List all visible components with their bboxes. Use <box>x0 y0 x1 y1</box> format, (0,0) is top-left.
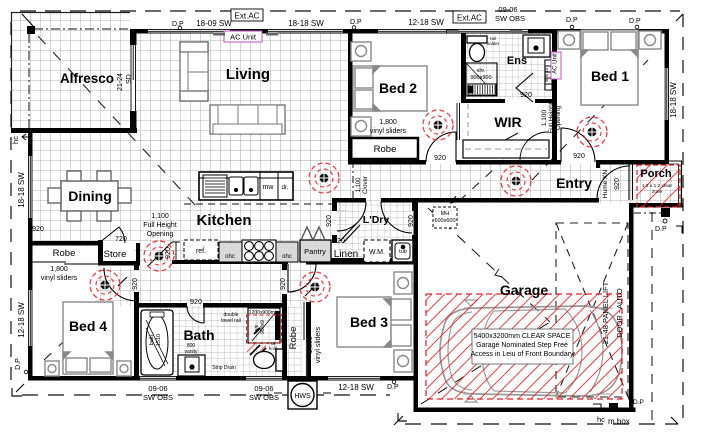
svg-text:09-06: 09-06 <box>498 5 517 14</box>
svg-text:D.P: D.P <box>15 358 22 370</box>
svg-text:1.2 x 1.2 clear: 1.2 x 1.2 clear <box>642 183 673 189</box>
svg-text:Garage Nominated Step Free: Garage Nominated Step Free <box>476 342 568 349</box>
svg-text:Entry: Entry <box>556 175 592 191</box>
svg-text:hc: hc <box>597 415 605 424</box>
svg-text:Dining: Dining <box>68 188 112 204</box>
svg-text:1,100: 1,100 <box>541 109 548 126</box>
svg-text:Ext.AC: Ext.AC <box>235 12 260 21</box>
svg-text:SD: SD <box>126 74 133 84</box>
svg-text:1,800: 1,800 <box>50 266 68 273</box>
svg-text:ohc: ohc <box>225 254 235 260</box>
svg-text:620: 620 <box>333 238 345 245</box>
svg-text:vinyl sliders: vinyl sliders <box>370 128 407 135</box>
svg-text:D.P: D.P <box>566 17 578 24</box>
svg-text:Robe: Robe <box>288 327 299 350</box>
svg-text:Porch: Porch <box>640 168 671 180</box>
svg-text:Garage: Garage <box>500 282 548 298</box>
svg-text:920: 920 <box>190 299 202 306</box>
svg-text:Kitchen: Kitchen <box>196 212 251 229</box>
svg-text:12-18 SW: 12-18 SW <box>408 18 444 27</box>
svg-text:1510: 1510 <box>156 334 162 346</box>
svg-text:18-18 SW: 18-18 SW <box>288 19 324 28</box>
svg-text:1,100: 1,100 <box>356 177 362 193</box>
svg-text:towel rail: towel rail <box>221 318 241 324</box>
svg-text:18-18 SW: 18-18 SW <box>669 82 678 118</box>
svg-text:920: 920 <box>614 178 621 190</box>
svg-text:Pantry: Pantry <box>304 247 326 256</box>
svg-text:18-09 SW: 18-09 SW <box>196 19 232 28</box>
svg-text:900x900: 900x900 <box>470 75 491 81</box>
svg-text:zone: zone <box>652 190 663 195</box>
svg-text:Full Height: Full Height <box>143 222 177 229</box>
svg-text:600x600: 600x600 <box>434 218 455 224</box>
svg-text:DOOR - AUTO: DOOR - AUTO <box>615 288 624 338</box>
svg-text:MH: MH <box>441 211 450 217</box>
svg-text:D.P: D.P <box>629 18 641 25</box>
svg-text:AC Unit: AC Unit <box>230 33 257 42</box>
svg-text:ref.: ref. <box>196 248 206 255</box>
svg-text:Strip Drain: Strip Drain <box>212 365 236 371</box>
svg-text:Opening: Opening <box>555 105 562 130</box>
svg-text:m.box: m.box <box>608 417 630 426</box>
svg-text:SW OBS: SW OBS <box>495 14 525 23</box>
svg-text:D.P: D.P <box>655 226 667 233</box>
svg-text:dr.: dr. <box>282 185 289 191</box>
svg-text:920: 920 <box>132 278 139 290</box>
svg-text:920: 920 <box>520 92 532 99</box>
svg-text:hold: hold <box>269 346 278 351</box>
svg-text:920: 920 <box>434 155 446 162</box>
svg-text:1,100: 1,100 <box>151 213 169 220</box>
svg-text:shr.: shr. <box>477 68 486 74</box>
svg-text:AC Unit: AC Unit <box>553 53 559 74</box>
svg-text:Bed 4: Bed 4 <box>69 318 107 334</box>
svg-text:Linen: Linen <box>334 249 358 260</box>
svg-text:L'Dry: L'Dry <box>363 214 390 226</box>
svg-text:mw: mw <box>263 184 275 191</box>
svg-text:Hume XN: Hume XN <box>602 170 609 198</box>
svg-text:hc: hc <box>11 136 20 144</box>
svg-text:Opening: Opening <box>147 231 174 238</box>
svg-text:W.M.: W.M. <box>369 249 385 256</box>
svg-text:720: 720 <box>115 236 127 243</box>
svg-text:D.P: D.P <box>633 399 644 406</box>
svg-text:12-18 SW: 12-18 SW <box>17 302 26 338</box>
svg-text:Access in Leiu of Front Bounda: Access in Leiu of Front Boundary <box>470 351 574 358</box>
svg-text:09-06: 09-06 <box>254 384 273 393</box>
svg-text:HWS: HWS <box>294 393 311 400</box>
svg-text:21-48 PANEL LIFT: 21-48 PANEL LIFT <box>601 281 610 344</box>
svg-text:SW OBS: SW OBS <box>249 393 279 402</box>
svg-text:920: 920 <box>280 278 287 290</box>
svg-text:Full Height: Full Height <box>548 102 555 133</box>
svg-text:bath: bath <box>149 335 155 346</box>
svg-text:D.P: D.P <box>387 384 399 391</box>
svg-text:21-24: 21-24 <box>117 73 124 91</box>
svg-text:C/over: C/over <box>363 176 369 194</box>
svg-text:Alfresco: Alfresco <box>60 71 114 86</box>
svg-text:18-18 SW: 18-18 SW <box>17 172 26 208</box>
svg-text:920: 920 <box>573 153 585 160</box>
svg-text:D.P: D.P <box>172 21 184 28</box>
svg-text:vinyl sliders: vinyl sliders <box>41 275 78 282</box>
svg-text:tub: tub <box>399 249 407 255</box>
svg-text:shlv x4: shlv x4 <box>544 68 549 83</box>
svg-text:900x9: 900x9 <box>260 320 266 334</box>
svg-text:12-18 SW: 12-18 SW <box>338 383 374 392</box>
svg-text:5400x3200mm CLEAR SPACE: 5400x3200mm CLEAR SPACE <box>474 333 571 340</box>
svg-text:09-06: 09-06 <box>148 384 167 393</box>
svg-text:holder: holder <box>487 41 500 46</box>
svg-text:1200x900mm: 1200x900mm <box>249 310 279 316</box>
svg-text:Ens: Ens <box>507 55 527 67</box>
svg-text:Ext.AC: Ext.AC <box>457 14 482 23</box>
svg-text:Bed 3: Bed 3 <box>350 314 388 330</box>
svg-text:Bath: Bath <box>183 327 214 343</box>
svg-text:Robe: Robe <box>374 144 397 155</box>
svg-text:D.P: D.P <box>350 19 362 26</box>
svg-text:920: 920 <box>165 247 172 259</box>
svg-text:ohc: ohc <box>282 254 292 260</box>
svg-text:920: 920 <box>326 215 333 227</box>
svg-text:920: 920 <box>32 226 44 233</box>
svg-text:Store: Store <box>104 249 127 260</box>
svg-text:Bed 1: Bed 1 <box>591 68 629 84</box>
svg-text:SW OBS: SW OBS <box>143 393 173 402</box>
svg-text:1,800: 1,800 <box>307 336 314 354</box>
svg-text:vinyl sliders: vinyl sliders <box>315 326 322 363</box>
svg-text:920: 920 <box>408 215 415 227</box>
svg-text:vanity: vanity <box>184 349 198 355</box>
svg-text:Living: Living <box>226 66 270 83</box>
svg-text:WIR: WIR <box>494 114 521 130</box>
svg-text:Bed 2: Bed 2 <box>379 80 417 96</box>
svg-text:Robe: Robe <box>53 248 76 259</box>
svg-text:1,800: 1,800 <box>379 119 397 126</box>
